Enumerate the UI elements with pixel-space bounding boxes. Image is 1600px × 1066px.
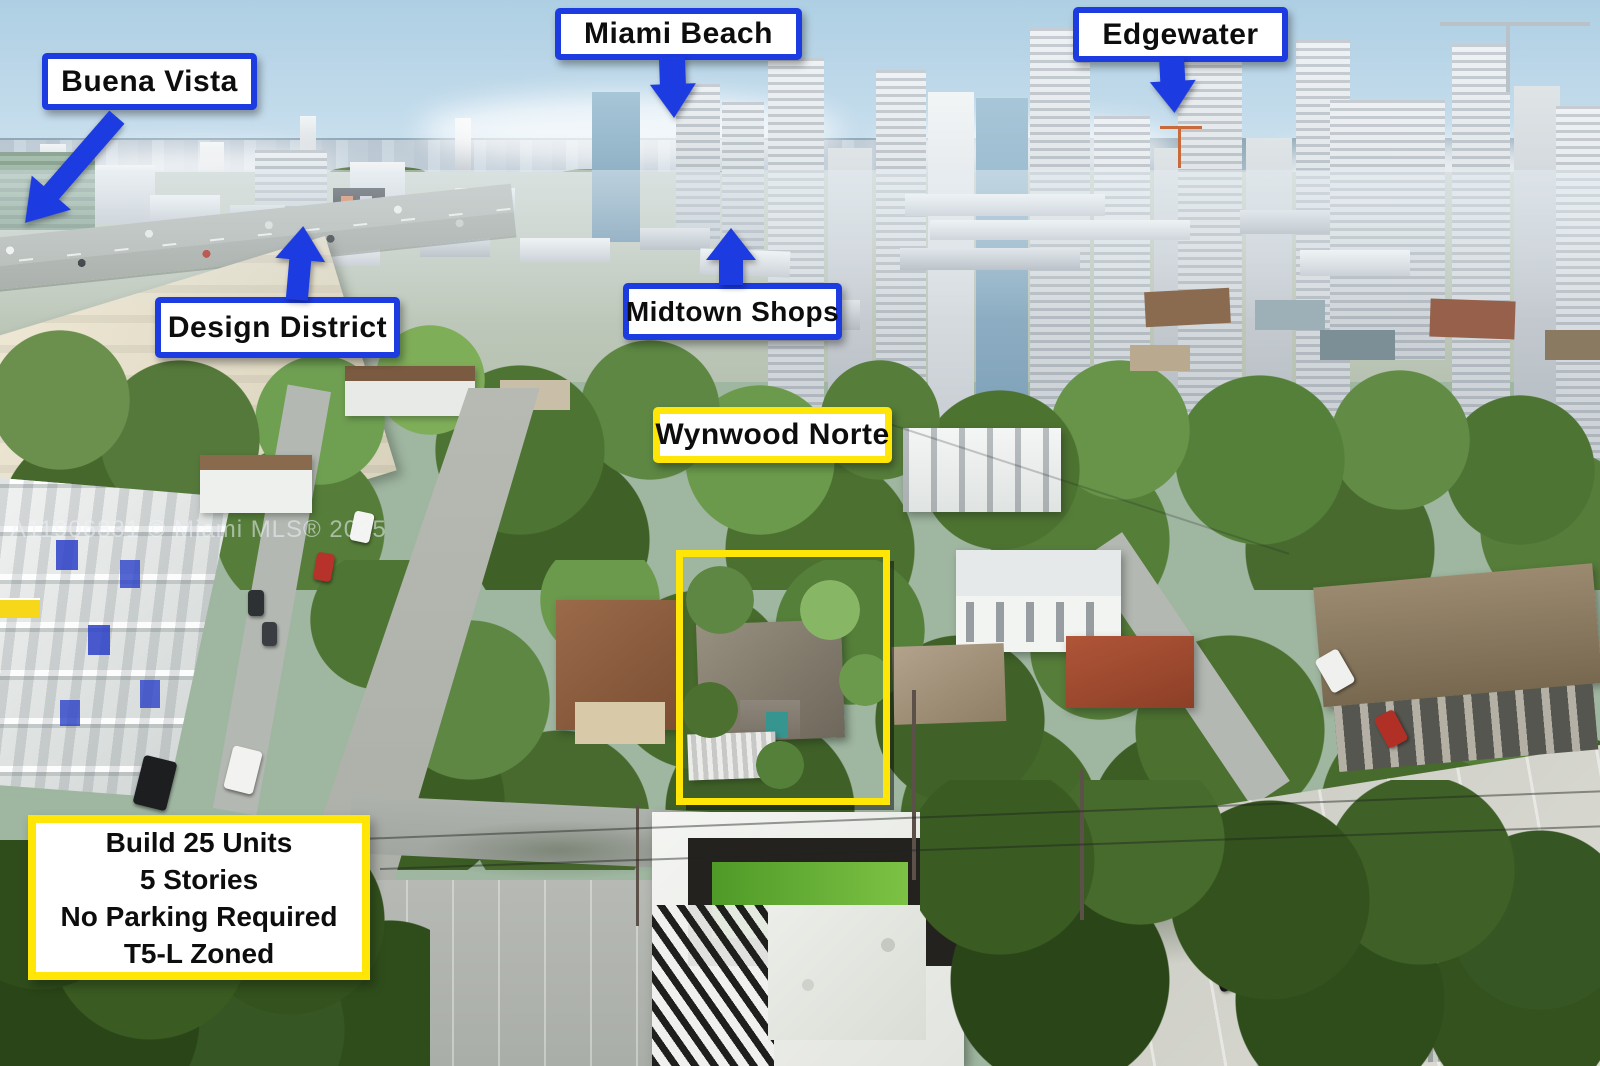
construction-crane: [1160, 126, 1202, 129]
midtown-shops-buildings: [930, 220, 1190, 240]
midtown-shops-buildings: [905, 194, 1105, 216]
label-text: Design District: [168, 311, 387, 345]
white-apartment: [200, 455, 312, 513]
zoning-info-box: Build 25 Units 5 Stories No Parking Requ…: [28, 815, 370, 980]
house-roof: [1545, 330, 1600, 360]
label-text: Midtown Shops: [626, 296, 839, 328]
label-wynwood-norte: Wynwood Norte: [653, 407, 892, 463]
apartment-roof: [1313, 563, 1600, 707]
midtown-shops-buildings: [900, 248, 1080, 270]
neighbor-roof: [892, 643, 1007, 725]
info-line: No Parking Required: [61, 898, 338, 935]
car: [262, 622, 277, 646]
miami-beach-arrow: [649, 56, 697, 119]
house-roof: [1255, 300, 1325, 330]
house-roof: [1144, 288, 1231, 327]
house-roof: [1130, 345, 1190, 371]
commercial-building: [1240, 210, 1330, 234]
large-apartment-building: [1313, 563, 1600, 802]
skyscraper: [592, 92, 640, 242]
white-three-story-building: [903, 428, 1061, 512]
car: [248, 590, 264, 616]
red-tile-roof-house: [1066, 636, 1194, 708]
label-text: Miami Beach: [584, 17, 773, 51]
apartment-block: [95, 165, 155, 223]
utility-pole: [912, 690, 916, 880]
tan-house-wall: [575, 702, 665, 744]
label-text: Buena Vista: [61, 65, 238, 99]
edgewater-arrow: [1149, 57, 1198, 114]
label-edgewater: Edgewater: [1073, 7, 1288, 62]
info-line: 5 Stories: [140, 861, 258, 898]
info-line: T5-L Zoned: [124, 935, 274, 972]
real-estate-aerial-screenshot: A11906831 © Miami MLS® 2025 Buena Vista …: [0, 0, 1600, 1066]
label-midtown-shops: Midtown Shops: [623, 283, 842, 340]
commercial-building: [640, 228, 710, 250]
house-roof: [1320, 330, 1395, 360]
construction-crane: [1506, 22, 1510, 92]
modern-building-roof: [768, 905, 926, 1040]
midtown-shops-arrow: [706, 228, 756, 285]
commercial-building: [520, 238, 610, 262]
tree-canopy-foreground: [920, 780, 1600, 1066]
design-district-arrow: [272, 224, 328, 302]
property-highlight-rectangle: [676, 550, 890, 805]
modern-building-pergola: [652, 905, 774, 1066]
apartment-building: [345, 366, 475, 416]
label-design-district: Design District: [155, 297, 400, 358]
mls-watermark: A11906831 © Miami MLS® 2025: [10, 516, 387, 544]
commercial-building: [1300, 250, 1410, 276]
label-miami-beach: Miami Beach: [555, 8, 802, 60]
utility-pole: [636, 806, 639, 926]
label-text: Edgewater: [1102, 18, 1258, 52]
label-buena-vista: Buena Vista: [42, 53, 257, 110]
label-text: Wynwood Norte: [655, 418, 889, 452]
construction-crane: [1178, 126, 1181, 168]
house-roof: [1429, 299, 1515, 340]
construction-crane: [1440, 22, 1590, 26]
info-line: Build 25 Units: [106, 824, 293, 861]
